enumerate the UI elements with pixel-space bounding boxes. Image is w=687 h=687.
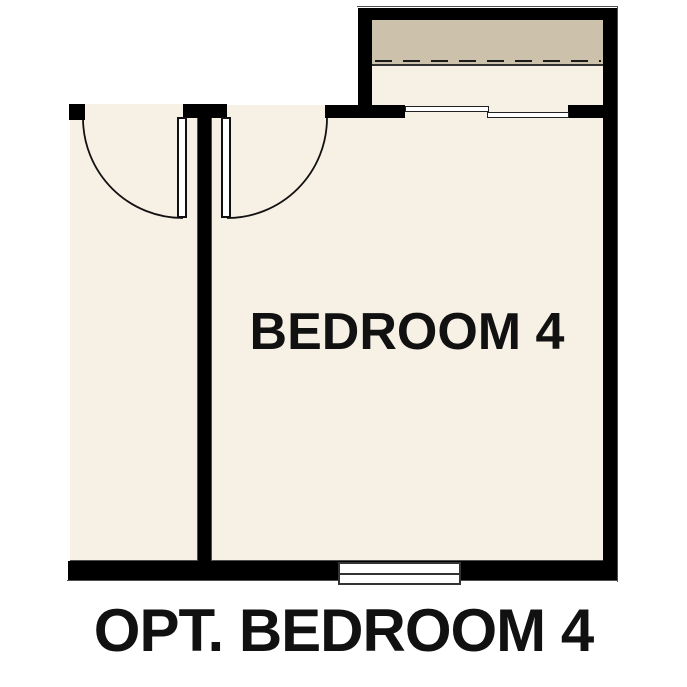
left-doorway-stub-wall — [69, 104, 85, 120]
left-door-leaf — [177, 117, 187, 218]
closet-shelf-area — [372, 20, 603, 65]
closet-left-wall — [358, 8, 372, 118]
room-label: BEDROOM 4 — [211, 306, 603, 358]
plan-caption: OPT. BEDROOM 4 — [0, 601, 687, 661]
window-midline — [340, 573, 459, 575]
bedroom-top-wall — [325, 105, 405, 118]
floor-plan: BEDROOM 4 OPT. BEDROOM 4 — [0, 0, 687, 687]
closet-sliding-door-upper-panel — [405, 106, 489, 112]
bottom-window — [338, 562, 461, 585]
right-door-leaf — [221, 117, 231, 218]
right-exterior-wall — [603, 8, 617, 581]
room-divider-wall — [198, 117, 211, 561]
right-outline-hairline — [617, 7, 618, 582]
closet-floor — [372, 66, 603, 105]
door-header-wall — [183, 104, 227, 118]
closet-top-wall — [358, 8, 617, 20]
closet-right-stub-wall — [568, 105, 603, 118]
closet-sliding-door-lower-panel — [487, 112, 569, 118]
top-outline-hairline — [357, 6, 618, 7]
